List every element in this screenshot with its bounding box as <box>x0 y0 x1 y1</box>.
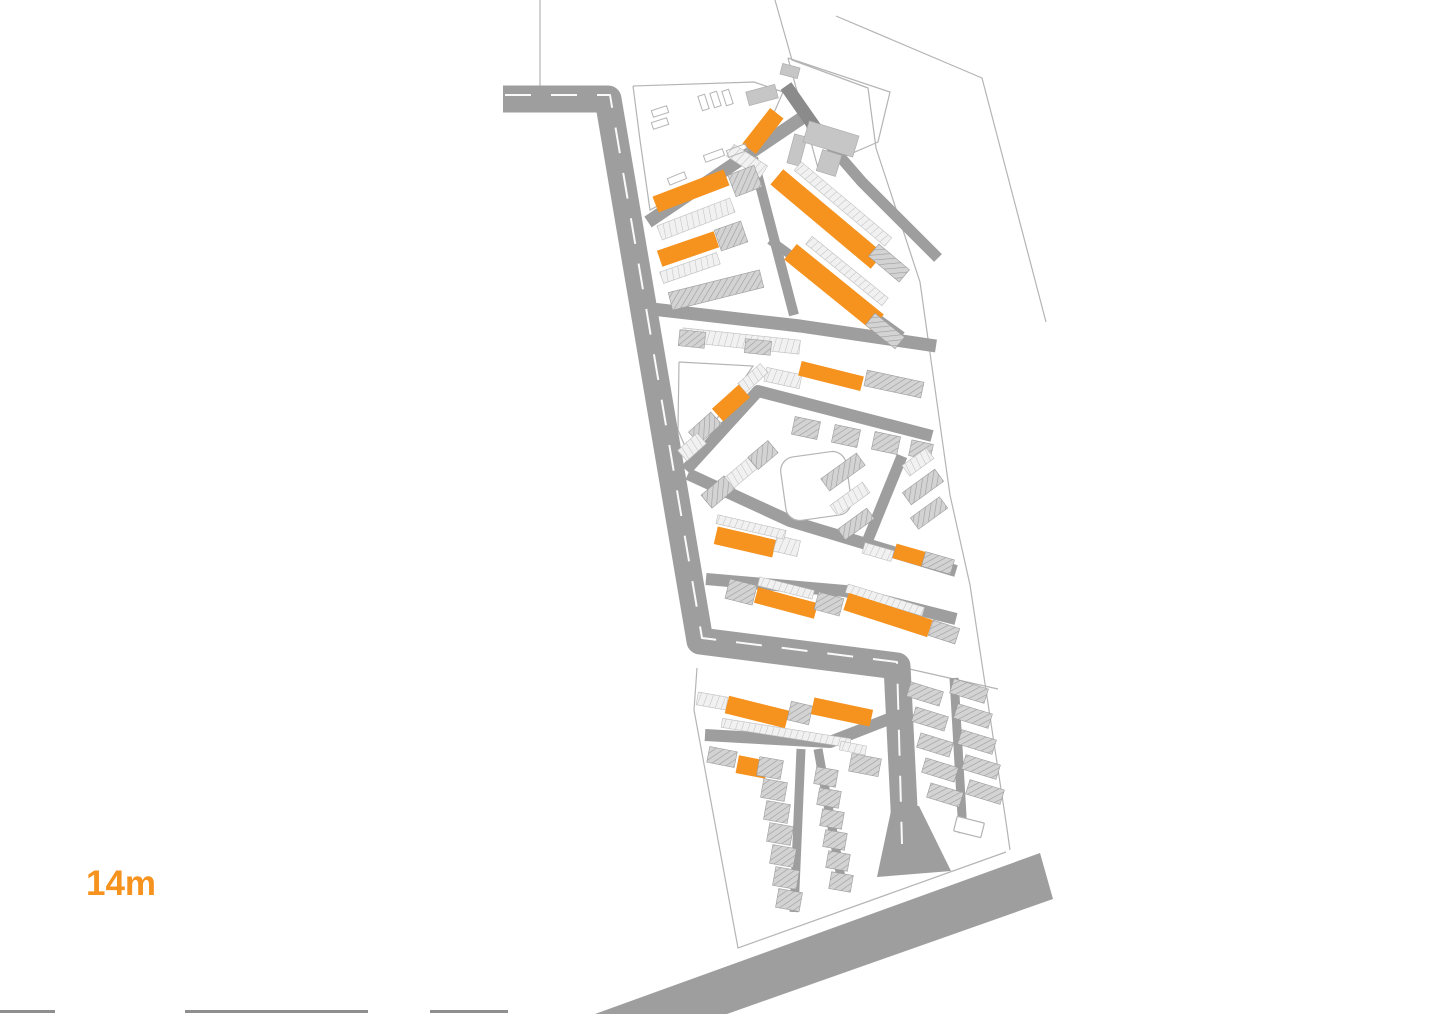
hatched-building <box>791 416 820 439</box>
hatched-building <box>820 809 845 830</box>
page-edge-mark <box>185 1010 368 1013</box>
hatched-building <box>831 424 860 447</box>
hatched-building <box>814 767 839 788</box>
page-edge-mark <box>430 1010 508 1013</box>
hatched-building <box>770 845 797 868</box>
gray-building <box>780 63 800 78</box>
hatched-building <box>871 431 900 454</box>
hatched-building <box>776 889 803 912</box>
site-plan-svg <box>0 0 1436 1014</box>
hatched-building <box>922 758 959 782</box>
allotment-marking <box>667 172 686 185</box>
page-edge-mark <box>0 1010 55 1013</box>
hatched-building <box>823 830 848 851</box>
street <box>867 456 902 542</box>
hatched-building <box>773 867 800 890</box>
hatched-building <box>962 755 1001 780</box>
hatched-building <box>864 370 924 398</box>
street <box>954 678 963 833</box>
allotment-marking <box>698 94 709 110</box>
open-space-outline <box>954 816 985 837</box>
terraced-strip <box>774 536 801 557</box>
hatched-building <box>849 753 882 776</box>
hatched-building <box>817 788 842 809</box>
allotment-marking <box>651 106 668 118</box>
height-label: 14m <box>86 864 156 904</box>
hatched-building <box>922 552 955 575</box>
site-plan-canvas: 14m <box>0 0 1436 1014</box>
boundary-line <box>836 16 1046 322</box>
page-edge-marks-layer <box>0 1010 508 1013</box>
orange-building <box>811 697 873 726</box>
terraced-strip <box>696 692 728 710</box>
allotment-marking <box>651 118 668 130</box>
hatched-building <box>761 779 788 802</box>
hatched-building <box>826 851 851 872</box>
terraced-strip <box>764 367 802 388</box>
hatched-building <box>966 780 1005 805</box>
hatched-building <box>707 746 738 767</box>
hatched-building <box>757 757 784 780</box>
hatched-building <box>767 823 794 846</box>
major-road-layer <box>595 806 1053 1014</box>
major-road <box>595 853 1053 1014</box>
hatched-building <box>744 339 771 356</box>
hatched-building <box>764 801 791 824</box>
hatched-building <box>678 330 706 349</box>
hatched-building <box>917 733 954 757</box>
allotment-marking <box>710 91 721 107</box>
gray-building <box>746 84 779 105</box>
allotment-marking <box>722 89 733 105</box>
hatched-building <box>829 872 854 893</box>
terraced-strip <box>839 741 866 755</box>
allotment-marking <box>703 149 724 162</box>
hatched-building <box>714 221 748 251</box>
hatched-building <box>958 730 997 755</box>
hatched-building <box>912 707 949 731</box>
hatched-building <box>787 701 813 724</box>
hatched-building <box>928 620 960 644</box>
orange-building <box>798 361 864 391</box>
